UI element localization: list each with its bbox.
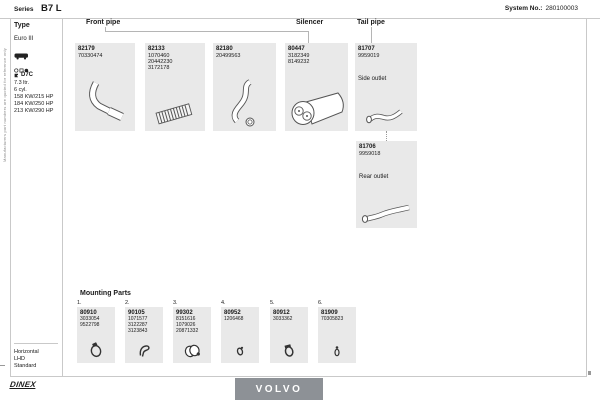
engine-row: D7C	[14, 72, 33, 79]
system-number: System No.: 280100003	[505, 5, 578, 12]
mounting-item-6: 6. 81909 70305823	[318, 300, 356, 363]
series-value: B7 L	[41, 3, 62, 14]
type-heading: Type	[14, 22, 30, 30]
oem-numbers: 20499563	[216, 53, 240, 59]
outlet-note: Rear outlet	[359, 174, 388, 180]
crop-mark-right	[588, 371, 591, 375]
tail-pipe-side-drawing	[359, 104, 413, 126]
config-orientation: Horizontal	[14, 349, 39, 356]
oem-numbers: 3033054 9522798	[80, 317, 99, 329]
part-number: 82179	[78, 46, 95, 53]
outlet-note: Side outlet	[358, 76, 386, 82]
mounting-item-4: 4. 80952 1206468	[221, 300, 259, 363]
engine-icon	[14, 73, 19, 78]
connector-silencer-drop	[308, 31, 309, 43]
mounting-box-81909: 81909 70305823	[318, 307, 356, 363]
engine-power-1: 158 KW/215 HP	[14, 94, 53, 101]
part-box-82179: 82179 70330474	[75, 43, 135, 131]
config-standard: Standard	[14, 363, 36, 370]
mounting-box-80912: 80912 3033362	[270, 307, 308, 363]
front-pipe-elbow-drawing	[77, 78, 133, 128]
mounting-item-5: 5. 80912 3033362	[270, 300, 308, 363]
oem-numbers: 9959019	[358, 53, 379, 59]
mounting-item-1: 1. 80910 3033054 9522798	[77, 300, 115, 363]
oem-numbers: 70330474	[78, 53, 102, 59]
part-number: 80447	[288, 46, 305, 53]
brand-name: VOLVO	[256, 384, 303, 395]
section-tail-pipe: Tail pipe	[357, 19, 385, 26]
footer-rule	[10, 376, 587, 377]
item-index: 1.	[77, 300, 115, 306]
oem-numbers: 3033362	[273, 317, 292, 323]
hanger-icon	[327, 341, 347, 359]
right-frame-rule	[586, 18, 587, 376]
part-number: 81706	[359, 144, 376, 151]
oem-numbers: 3182349 8149232	[288, 53, 309, 65]
sidebar-divider	[62, 18, 63, 376]
item-index: 2.	[125, 300, 163, 306]
connector-horizontal	[105, 31, 308, 32]
catalog-page: Manufacturers part numbers are quoted fo…	[0, 0, 600, 400]
system-number-label: System No.:	[505, 5, 543, 12]
crop-mark-left	[0, 365, 5, 366]
oem-numbers: 1070460 20442230 3172178	[148, 53, 172, 72]
oem-numbers: 1071577 3122287 3123843	[128, 317, 147, 334]
mounting-item-2: 2. 90105 1071577 3122287 3123843	[125, 300, 163, 363]
oem-numbers: 1206468	[224, 317, 243, 323]
part-box-82180: 82180 20499563	[213, 43, 276, 131]
mounting-box-80910: 80910 3033054 9522798	[77, 307, 115, 363]
part-number: 82180	[216, 46, 233, 53]
clamp-with-bolt-icon	[279, 341, 299, 359]
series-label: Series	[14, 6, 34, 14]
clamp-icon	[86, 341, 106, 359]
mounting-item-3: 3. 99302 8151616 1079026 20871332	[173, 300, 211, 363]
brand-bar: VOLVO	[235, 378, 323, 400]
sidebar-footer-rule	[14, 343, 58, 344]
mounting-box-99302: 99302 8151616 1079026 20871332	[173, 307, 211, 363]
part-box-81707: 81707 9959019 Side outlet	[355, 43, 417, 131]
band-clamp-icon	[182, 341, 202, 359]
item-index: 4.	[221, 300, 259, 306]
part-number: 81707	[358, 46, 375, 53]
engine-power-3: 213 KW/290 HP	[14, 108, 53, 115]
oem-numbers: 70305823	[321, 317, 343, 323]
item-index: 5.	[270, 300, 308, 306]
part-number: 82133	[148, 46, 165, 53]
engine-power-2: 184 KW/250 HP	[14, 101, 53, 108]
connector-tailpipe-drop	[371, 27, 372, 43]
section-silencer: Silencer	[296, 19, 323, 26]
mounting-box-90105: 90105 1071577 3122287 3123843	[125, 307, 163, 363]
bracket-icon	[134, 341, 154, 359]
config-drive: LHD	[14, 356, 25, 363]
part-box-80447: 80447 3182349 8149232	[285, 43, 348, 131]
mounting-box-80952: 80952 1206468	[221, 307, 259, 363]
tail-pipe-rear-drawing	[358, 181, 414, 225]
engine-displacement: 7.3 ltr.	[14, 80, 29, 87]
dinex-logo: DINEX	[9, 380, 36, 389]
system-number-value: 280100003	[545, 5, 578, 12]
mounting-parts-title: Mounting Parts	[80, 290, 131, 298]
small-clamp-icon	[230, 341, 250, 359]
silencer-drawing	[286, 77, 347, 129]
left-frame-rule	[10, 18, 11, 376]
side-disclaimer: Manufacturers part numbers are quoted fo…	[2, 30, 7, 162]
front-pipe-s-drawing	[217, 78, 273, 128]
section-front-pipe: Front pipe	[86, 19, 120, 26]
engine-cylinders: 6 cyl.	[14, 87, 27, 94]
flex-pipe-drawing	[147, 78, 203, 128]
part-box-81706: 81706 9959018 Rear outlet	[356, 141, 417, 228]
item-index: 6.	[318, 300, 356, 306]
connector-tailpipe-variants	[386, 131, 387, 141]
euro-class: Euro III	[14, 36, 33, 43]
oem-numbers: 9959018	[359, 151, 380, 157]
part-box-82133: 82133 1070460 20442230 3172178	[145, 43, 205, 131]
engine-code: D7C	[21, 72, 33, 79]
oem-numbers: 8151616 1079026 20871332	[176, 317, 198, 334]
item-index: 3.	[173, 300, 211, 306]
